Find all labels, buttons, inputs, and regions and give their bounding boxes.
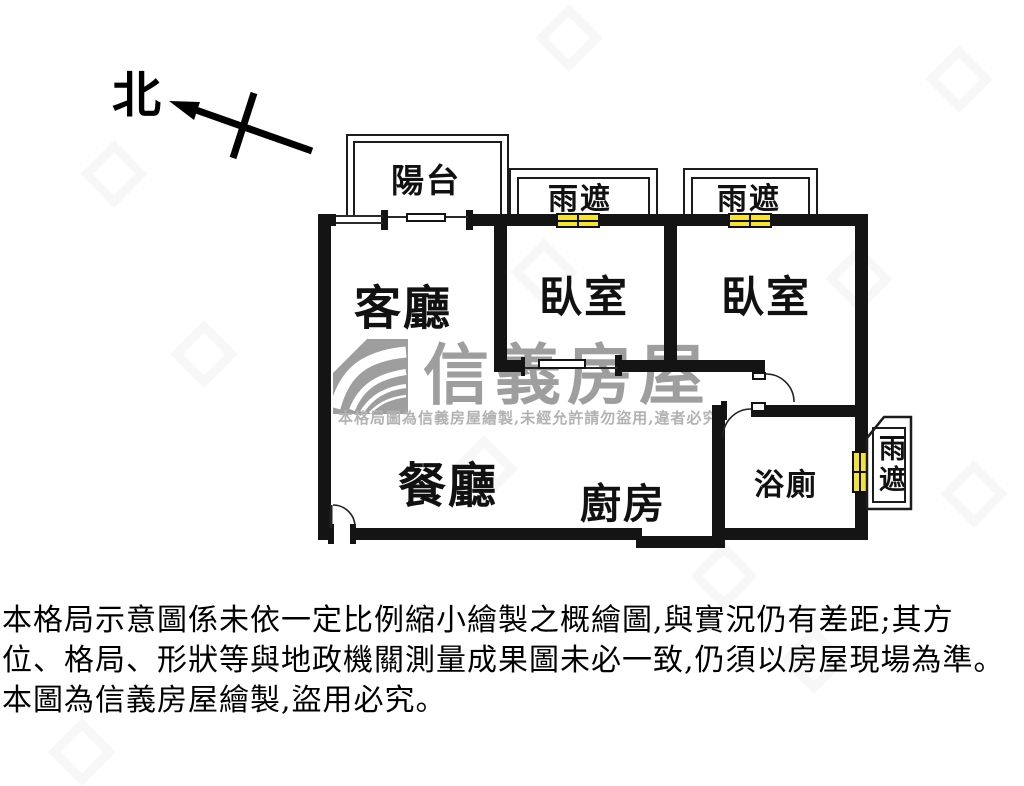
watermark-notice: 本格局圖為信義房屋繪製,未經允許請勿盜用,違者必究: [338, 407, 718, 428]
door-arc-bath: [723, 409, 751, 437]
door-jamb: [615, 355, 622, 376]
wall-divider-bed1-bed2: [664, 226, 677, 372]
sill-line: [336, 222, 383, 224]
wall-bath-top: [751, 405, 855, 417]
room-label-canopy-left: 雨遮: [548, 174, 612, 218]
sliding-door-panel-bed1: [538, 359, 586, 369]
wall-right-lower: [855, 492, 868, 540]
ghost-mark: [940, 460, 1008, 528]
wall-right-upper: [855, 214, 868, 452]
door-arc-bed2: [766, 374, 794, 402]
room-label-bedroom1: 臥室: [539, 263, 629, 325]
disclaimer-line-1: 本格局示意圖係未依一定比例縮小繪製之概繪圖,與實況仍有差距;其方: [2, 601, 1024, 641]
disclaimer-line-2: 位、格局、形狀等與地政機關測量成果圖未必一致,仍須以房屋現場為準。: [2, 641, 1024, 681]
room-label-living: 客廳: [354, 270, 452, 339]
door-jamb: [466, 210, 473, 230]
wall-divider-living-bed1: [494, 226, 507, 372]
door-jamb: [381, 210, 388, 230]
window-symbol: [852, 451, 868, 493]
room-label-dining: 餐廳: [398, 446, 498, 516]
north-label: 北: [112, 56, 161, 127]
sill-line: [336, 215, 383, 217]
wall-below-beds-b: [617, 360, 765, 372]
ghost-mark: [690, 542, 758, 610]
wall-bottom-bath: [712, 528, 868, 540]
door-leaf-bed2: [752, 372, 766, 380]
wall-top-main: [473, 214, 868, 226]
wall-left: [318, 214, 331, 540]
disclaimer-text: 本格局示意圖係未依一定比例縮小繪製之概繪圖,與實況仍有差距;其方 位、格局、形狀…: [2, 601, 1024, 721]
ghost-mark: [48, 718, 116, 786]
room-label-balcony: 陽台: [391, 154, 461, 202]
floorplan-canvas: 信義房屋 本格局圖為信義房屋繪製,未經允許請勿盜用,違者必究 北 陽台 雨遮 雨…: [0, 0, 1024, 768]
door-jamb: [328, 524, 334, 544]
room-label-kitchen: 廚房: [580, 470, 666, 530]
ghost-mark: [535, 4, 603, 72]
room-label-bathroom: 浴廁: [754, 460, 818, 504]
wall-bottom-kitchen-step: [636, 536, 718, 548]
sliding-door-panel-balcony: [406, 213, 446, 222]
ghost-mark: [925, 45, 993, 113]
room-label-canopy-side: 雨遮: [874, 434, 904, 496]
north-arrow-icon: [169, 93, 312, 158]
door-jamb: [350, 524, 356, 544]
door-jamb: [721, 401, 727, 420]
ghost-mark: [80, 140, 148, 208]
room-label-canopy-right: 雨遮: [717, 174, 781, 218]
door-leaf-bath: [751, 402, 766, 412]
watermark-logo-icon: [333, 339, 408, 414]
room-label-bedroom2: 臥室: [721, 263, 811, 325]
ghost-mark: [170, 320, 238, 388]
disclaimer-line-3: 本圖為信義房屋繪製,盜用必究。: [2, 681, 1024, 721]
wall-bath-left: [712, 405, 725, 548]
